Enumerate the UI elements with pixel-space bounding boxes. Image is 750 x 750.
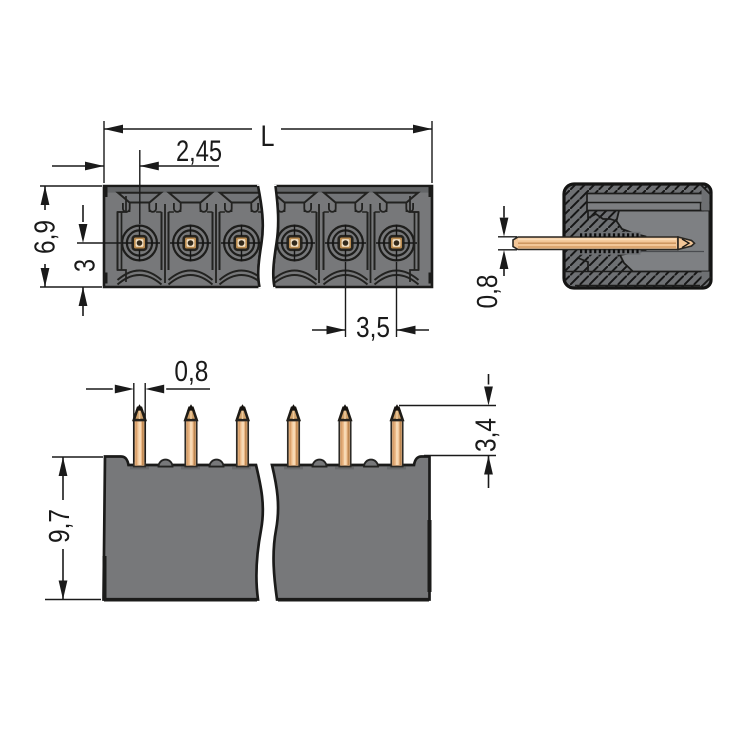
svg-text:6,9: 6,9 <box>30 220 62 254</box>
svg-text:9,7: 9,7 <box>44 509 76 543</box>
svg-text:3: 3 <box>70 259 102 272</box>
svg-text:L: L <box>261 120 275 153</box>
svg-text:0,8: 0,8 <box>472 275 504 309</box>
svg-text:2,45: 2,45 <box>176 135 222 168</box>
svg-text:3,4: 3,4 <box>471 418 503 452</box>
svg-text:3,5: 3,5 <box>356 312 390 344</box>
svg-text:0,8: 0,8 <box>174 356 208 388</box>
